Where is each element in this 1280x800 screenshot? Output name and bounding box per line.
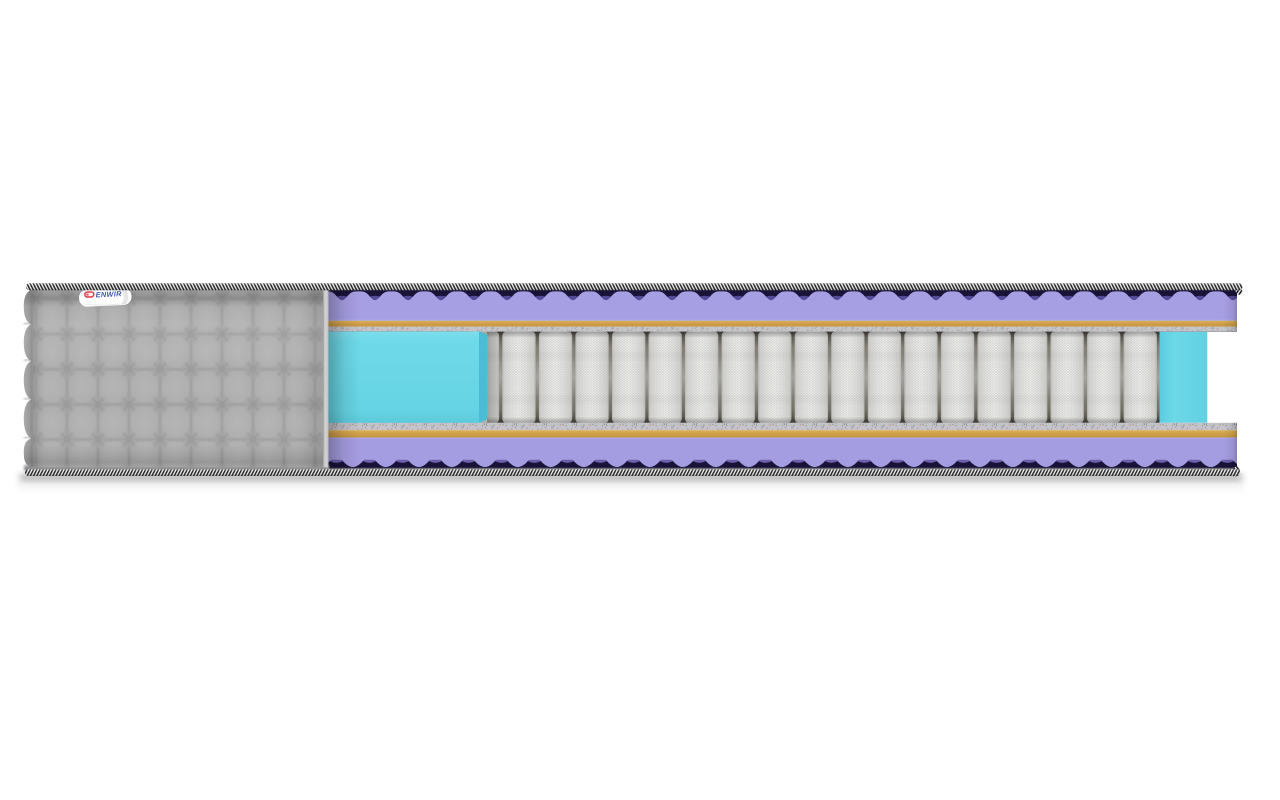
svg-text:ENWIR: ENWIR <box>95 289 122 299</box>
